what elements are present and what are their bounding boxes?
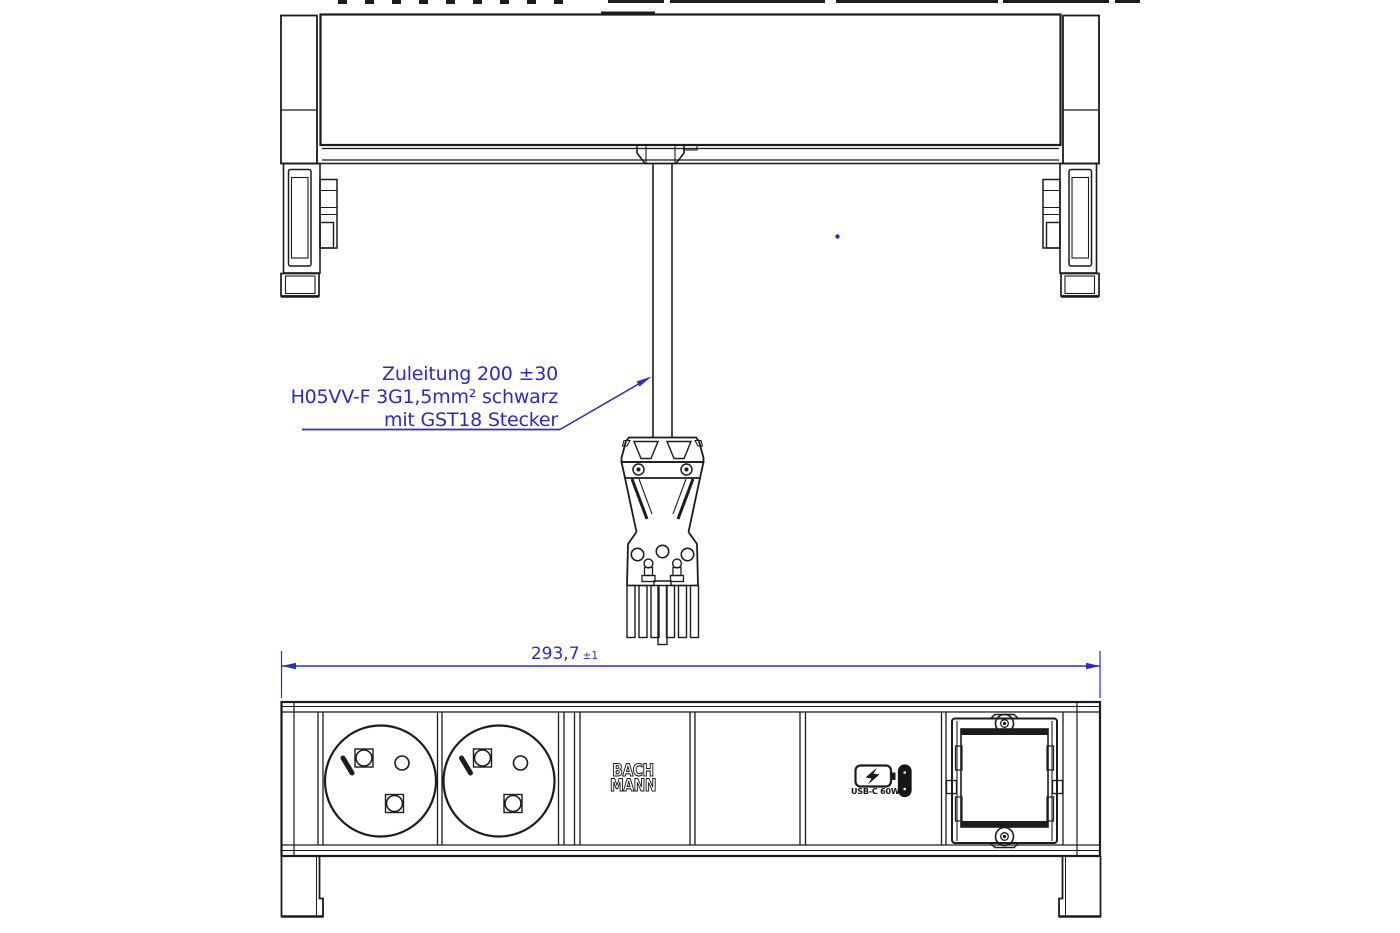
right-desk-clamp [1043, 16, 1099, 297]
gst18-connector [622, 438, 704, 645]
annotation-line-3: mit GST18 Stecker [270, 409, 558, 432]
dimension-line [282, 651, 1101, 698]
annotation-line-2: H05VV-F 3G1,5mm² schwarz [270, 386, 558, 409]
power-cable [653, 164, 672, 438]
stray-dot [835, 234, 839, 238]
socket-right [444, 726, 555, 837]
cable-terminal-screws [642, 559, 684, 581]
cutoff-marks [338, 0, 1140, 4]
bachmann-logo: BACH MANN [606, 764, 660, 793]
cable-annotation: Zuleitung 200 ±30 H05VV-F 3G1,5mm² schwa… [270, 363, 558, 433]
left-desk-clamp [281, 16, 337, 297]
dimension-tolerance: ±1 [583, 650, 598, 662]
cable-gland [637, 145, 697, 164]
connector-contact-teeth [627, 586, 699, 645]
dimension-text: 293,7±1 [478, 646, 598, 664]
annotation-line-1: Zuleitung 200 ±30 [270, 363, 558, 386]
usb-c-port-icon [899, 765, 912, 797]
lightning-bolt-icon [866, 768, 880, 785]
technical-drawing-page: Zuleitung 200 ±30 H05VV-F 3G1,5mm² schwa… [0, 0, 1400, 933]
module-frame [947, 715, 1063, 848]
housing-top-view [281, 12, 1100, 164]
left-leg [282, 856, 324, 917]
dimension-value: 293,7 [531, 644, 580, 664]
drawing-linework [0, 0, 1400, 933]
logo-line-2: MANN [606, 779, 660, 794]
front-view [282, 702, 1101, 917]
housing-front-view [282, 702, 1101, 856]
socket-left [325, 726, 436, 837]
usb-port-label: USB-C 60W [851, 787, 897, 796]
right-leg [1059, 856, 1101, 917]
